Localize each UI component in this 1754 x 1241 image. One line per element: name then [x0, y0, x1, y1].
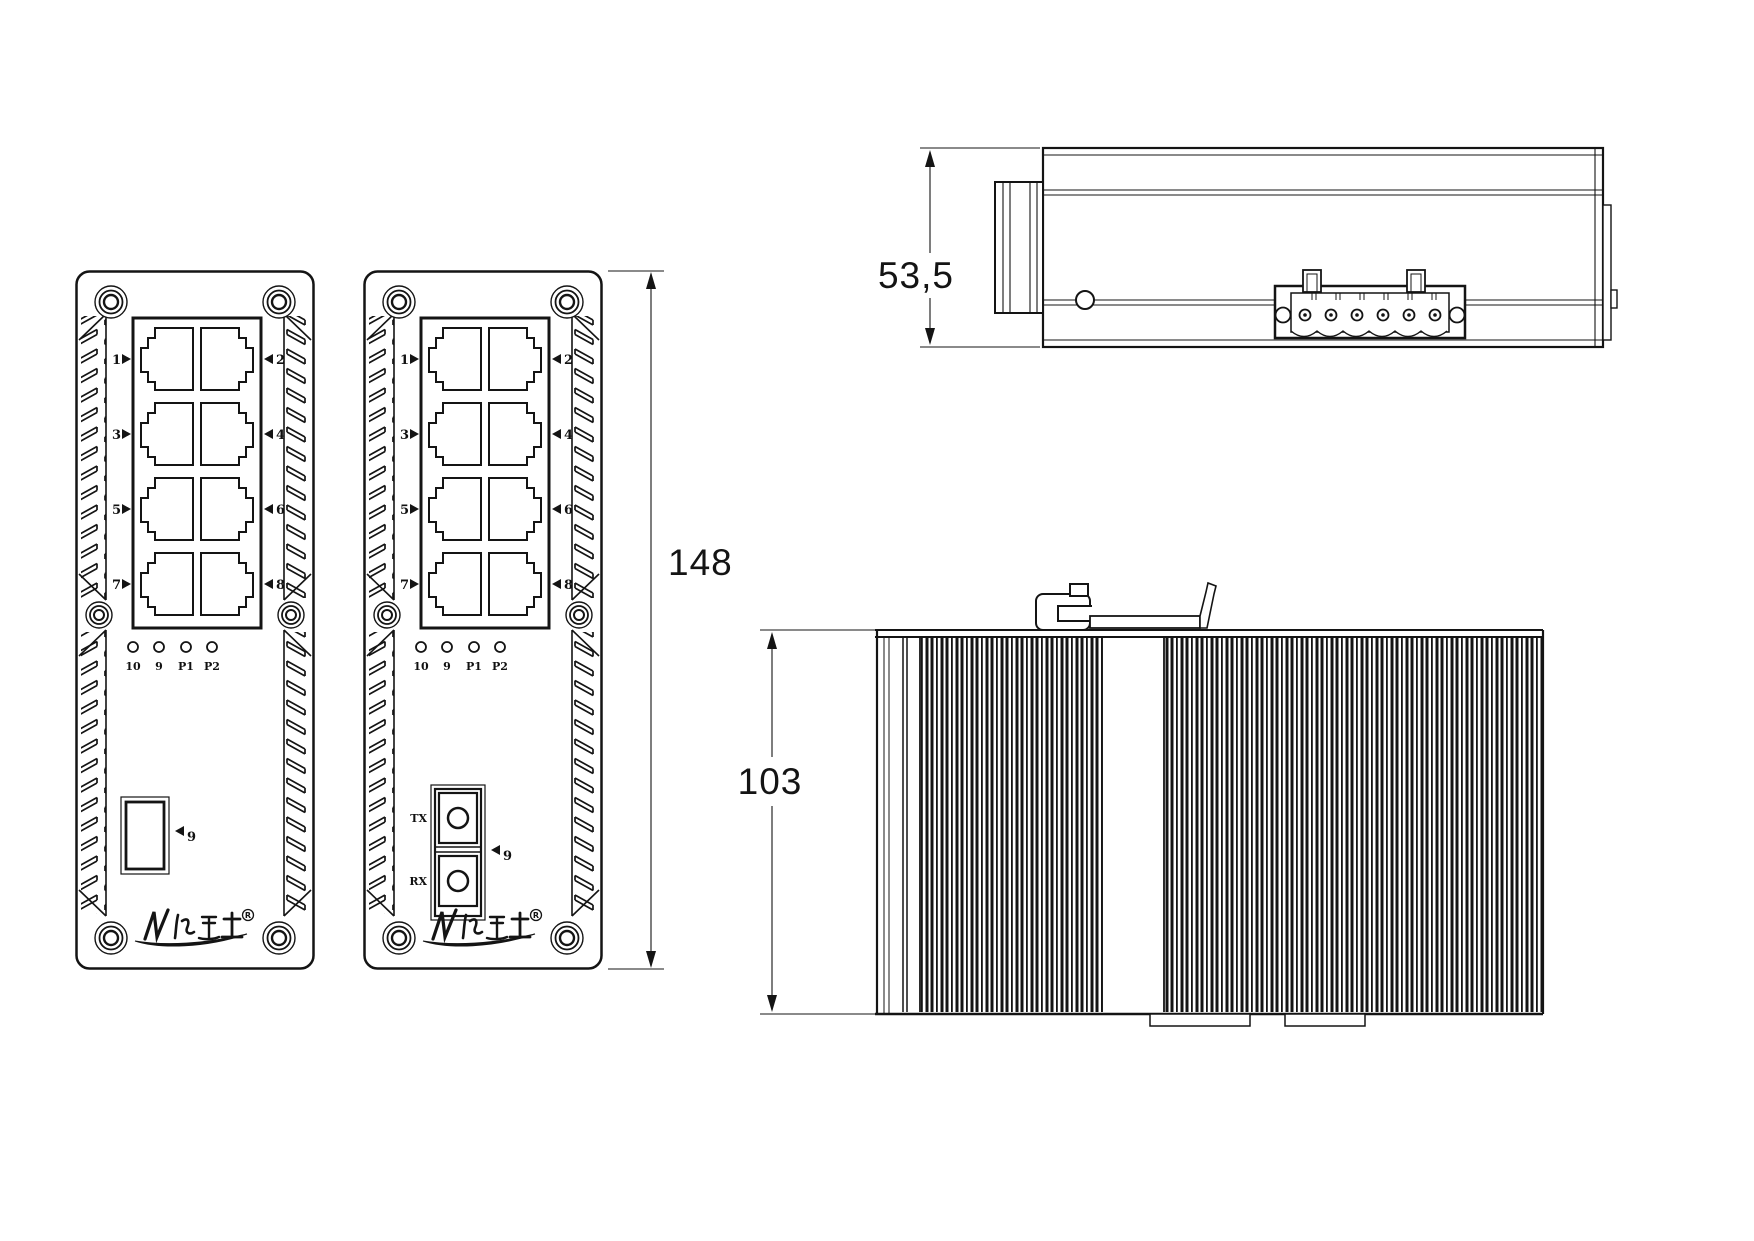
led-label-p2: P2	[204, 660, 220, 673]
terminal-end-screw	[1450, 308, 1465, 323]
port-label-1: 1	[112, 353, 121, 368]
port-label-7: 7	[112, 578, 121, 593]
port-label-2: 2	[276, 353, 285, 368]
led-label-p1: P1	[178, 660, 194, 673]
port-label-5: 5	[400, 503, 409, 518]
port-label-5: 5	[112, 503, 121, 518]
arrowhead-up-icon	[767, 632, 777, 649]
din-rail-clip	[1036, 583, 1216, 630]
clip-tab	[1070, 584, 1088, 596]
dimension-text-148: 148	[668, 542, 733, 583]
clip-cavity	[1058, 606, 1092, 621]
fiber-rx-ferrule	[448, 871, 468, 891]
led-label-9: 9	[155, 660, 163, 673]
led-label-p1: P1	[466, 660, 482, 673]
ground-screw-hole	[1076, 291, 1094, 309]
fin-group-right	[1163, 638, 1543, 1012]
latch-tab	[1303, 270, 1321, 292]
front-panel-bump	[1611, 290, 1617, 308]
led-label-p2: P2	[492, 660, 508, 673]
port-label-6: 6	[564, 503, 573, 518]
port-label-8: 8	[276, 578, 285, 593]
single-fin	[903, 638, 907, 1012]
drawing-svg: 1 3 5 7 2 4 6 8 10 9 P1 P2 9 R 1 3 5 7 2…	[0, 0, 1754, 1241]
arrowhead-down-icon	[767, 995, 777, 1012]
port-label-3: 3	[400, 428, 409, 443]
registered-mark: R	[533, 911, 539, 920]
uplink-port-label: 9	[503, 849, 512, 864]
arrowhead-down-icon	[646, 951, 656, 968]
front-unit-base	[77, 272, 314, 969]
port-label-6: 6	[276, 503, 285, 518]
rx-label: RX	[409, 875, 427, 888]
port-label-4: 4	[276, 428, 285, 443]
dimension-text-103: 103	[738, 761, 803, 802]
dimension-103: 103	[738, 630, 880, 1014]
port-label-1: 1	[400, 353, 409, 368]
fiber-tx-ferrule	[448, 808, 468, 828]
din-rail-profile	[995, 182, 1043, 313]
terminal-end-screw	[1276, 308, 1291, 323]
latch-tab	[1407, 270, 1425, 292]
front-view-fiber-unit: 1 3 5 7 2 4 6 8 10 9 P1 P2 TX RX 9 R	[365, 272, 602, 969]
port-label-4: 4	[564, 428, 573, 443]
top-edge	[875, 630, 1543, 637]
bottom-tab	[1285, 1014, 1365, 1026]
technical-drawing-sheet: 1 3 5 7 2 4 6 8 10 9 P1 P2 9 R 1 3 5 7 2…	[0, 0, 1754, 1241]
registered-mark: R	[245, 911, 251, 920]
port-label-2: 2	[564, 353, 573, 368]
uplink-port-label: 9	[187, 830, 196, 845]
fin-group-left	[920, 638, 1103, 1012]
front-view-copper-unit: 1 3 5 7 2 4 6 8 10 9 P1 P2 9 R	[77, 272, 314, 969]
top-view: 53,5	[878, 148, 1617, 347]
clip-bar	[1090, 616, 1200, 628]
extension-lines	[608, 271, 664, 969]
led-label-10: 10	[125, 660, 141, 673]
arrowhead-down-icon	[925, 328, 935, 345]
port-label-3: 3	[112, 428, 121, 443]
dimension-148: 148	[608, 271, 733, 969]
arrowhead-up-icon	[925, 150, 935, 167]
bottom-tab	[1150, 1014, 1250, 1026]
port-label-8: 8	[564, 578, 573, 593]
arrowhead-up-icon	[646, 272, 656, 289]
tx-label: TX	[410, 812, 427, 825]
clip-latch-lever	[1200, 583, 1216, 628]
led-label-9: 9	[443, 660, 451, 673]
side-view: 103	[738, 583, 1543, 1026]
dimension-text-53-5: 53,5	[878, 255, 954, 296]
port-label-7: 7	[400, 578, 409, 593]
led-label-10: 10	[413, 660, 429, 673]
extension-lines	[760, 630, 880, 1014]
front-panel-lip	[1603, 205, 1611, 340]
